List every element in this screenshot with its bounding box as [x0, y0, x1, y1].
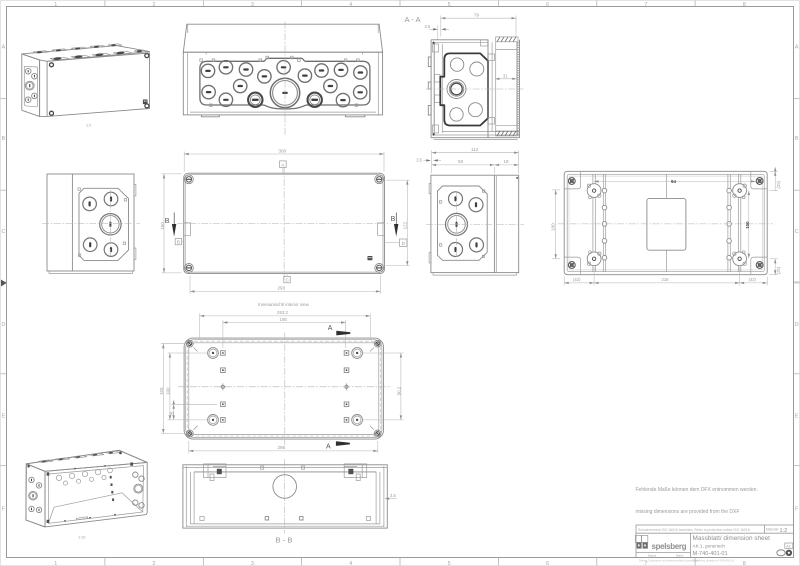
svg-text:295: 295: [278, 445, 286, 450]
svg-text:(25): (25): [776, 180, 781, 188]
svg-text:5: 5: [448, 561, 451, 566]
svg-text:C: C: [795, 229, 799, 235]
svg-text:(42): (42): [573, 277, 581, 282]
svg-text:50.2: 50.2: [397, 386, 402, 395]
svg-text:7: 7: [644, 2, 647, 8]
svg-text:A: A: [2, 44, 6, 50]
svg-text:AK 1, generisch: AK 1, generisch: [693, 544, 726, 549]
svg-text:25: 25: [169, 411, 174, 416]
svg-text:missing dimensions are provide: missing dimensions are provided from the…: [636, 509, 740, 515]
svg-text:D: D: [1, 322, 5, 328]
svg-text:Innenansicht/ interior view: Innenansicht/ interior view: [258, 302, 310, 307]
svg-text:Dieses Dokument ist urheberrec: Dieses Dokument ist urheberrechtlich ges…: [639, 559, 698, 563]
svg-text:A: A: [328, 325, 333, 332]
svg-text:6: 6: [546, 561, 549, 566]
svg-text:79: 79: [474, 13, 480, 18]
svg-text:A - A: A - A: [405, 15, 422, 24]
svg-text:216: 216: [662, 277, 670, 282]
svg-text:A2: A2: [786, 544, 790, 548]
svg-text:93: 93: [458, 159, 464, 164]
svg-text:2: 2: [153, 561, 156, 566]
svg-text:8: 8: [743, 561, 746, 566]
svg-text:1:2: 1:2: [86, 124, 91, 128]
svg-text:105: 105: [159, 387, 164, 395]
svg-text:94: 94: [671, 179, 676, 184]
svg-text:3.5: 3.5: [416, 157, 422, 162]
svg-text:Schutzvermerk ISO 16016 beacht: Schutzvermerk ISO 16016 beachten. Refer …: [638, 528, 751, 532]
svg-text:6: 6: [546, 2, 549, 8]
svg-text:B - B: B - B: [276, 536, 293, 545]
svg-text:100: 100: [550, 223, 555, 231]
svg-text:4: 4: [349, 2, 352, 8]
svg-text:185: 185: [280, 317, 288, 322]
svg-text:Fehlende Maße können dem DFX e: Fehlende Maße können dem DFX entnommen w…: [636, 487, 758, 493]
svg-text:D: D: [795, 322, 799, 328]
svg-text:B: B: [2, 136, 6, 142]
svg-text:B: B: [177, 240, 180, 245]
svg-text:A: A: [326, 443, 331, 450]
svg-text:M-740-401-01: M-740-401-01: [693, 551, 728, 557]
svg-text:8: 8: [743, 2, 746, 8]
svg-text:3: 3: [251, 2, 254, 8]
svg-text:(42): (42): [749, 277, 757, 282]
svg-text:B: B: [391, 216, 396, 223]
svg-text:2: 2: [153, 2, 156, 8]
svg-text:B: B: [165, 218, 170, 225]
svg-text:spelsberg: spelsberg: [652, 542, 687, 551]
svg-text:Name: Name: [676, 553, 684, 557]
svg-text:Datum: Datum: [648, 553, 657, 557]
svg-text:1:2: 1:2: [780, 528, 788, 534]
svg-text:112: 112: [471, 147, 479, 152]
svg-text:100: 100: [745, 221, 750, 229]
svg-text:Massblatt/ dimension sheet: Massblatt/ dimension sheet: [693, 535, 771, 542]
svg-text:122: 122: [402, 221, 407, 229]
svg-text:3.5: 3.5: [425, 24, 431, 29]
svg-text:3: 3: [251, 561, 254, 566]
svg-text:1:10: 1:10: [78, 536, 85, 540]
svg-text:1: 1: [54, 561, 57, 566]
svg-text:(25): (25): [776, 266, 781, 274]
svg-text:300: 300: [279, 148, 287, 153]
svg-text:E: E: [795, 414, 799, 420]
svg-text:1: 1: [54, 2, 57, 8]
svg-text:Spelsberg drawing M-740-401-0: Spelsberg drawing M-740-401-01: [693, 559, 735, 563]
svg-text:253.2: 253.2: [277, 310, 289, 315]
svg-text:C: C: [1, 229, 5, 235]
svg-text:E: E: [2, 414, 6, 420]
svg-text:293: 293: [278, 286, 286, 291]
svg-text:A: A: [795, 44, 799, 50]
svg-text:4: 4: [349, 561, 352, 566]
svg-text:100: 100: [166, 387, 171, 395]
svg-text:B: B: [795, 136, 799, 142]
svg-text:31: 31: [503, 73, 508, 78]
svg-text:5: 5: [448, 2, 451, 8]
svg-text:3.5: 3.5: [390, 493, 396, 498]
svg-text:Maßstab: Maßstab: [766, 528, 779, 532]
svg-text:18: 18: [504, 159, 510, 164]
